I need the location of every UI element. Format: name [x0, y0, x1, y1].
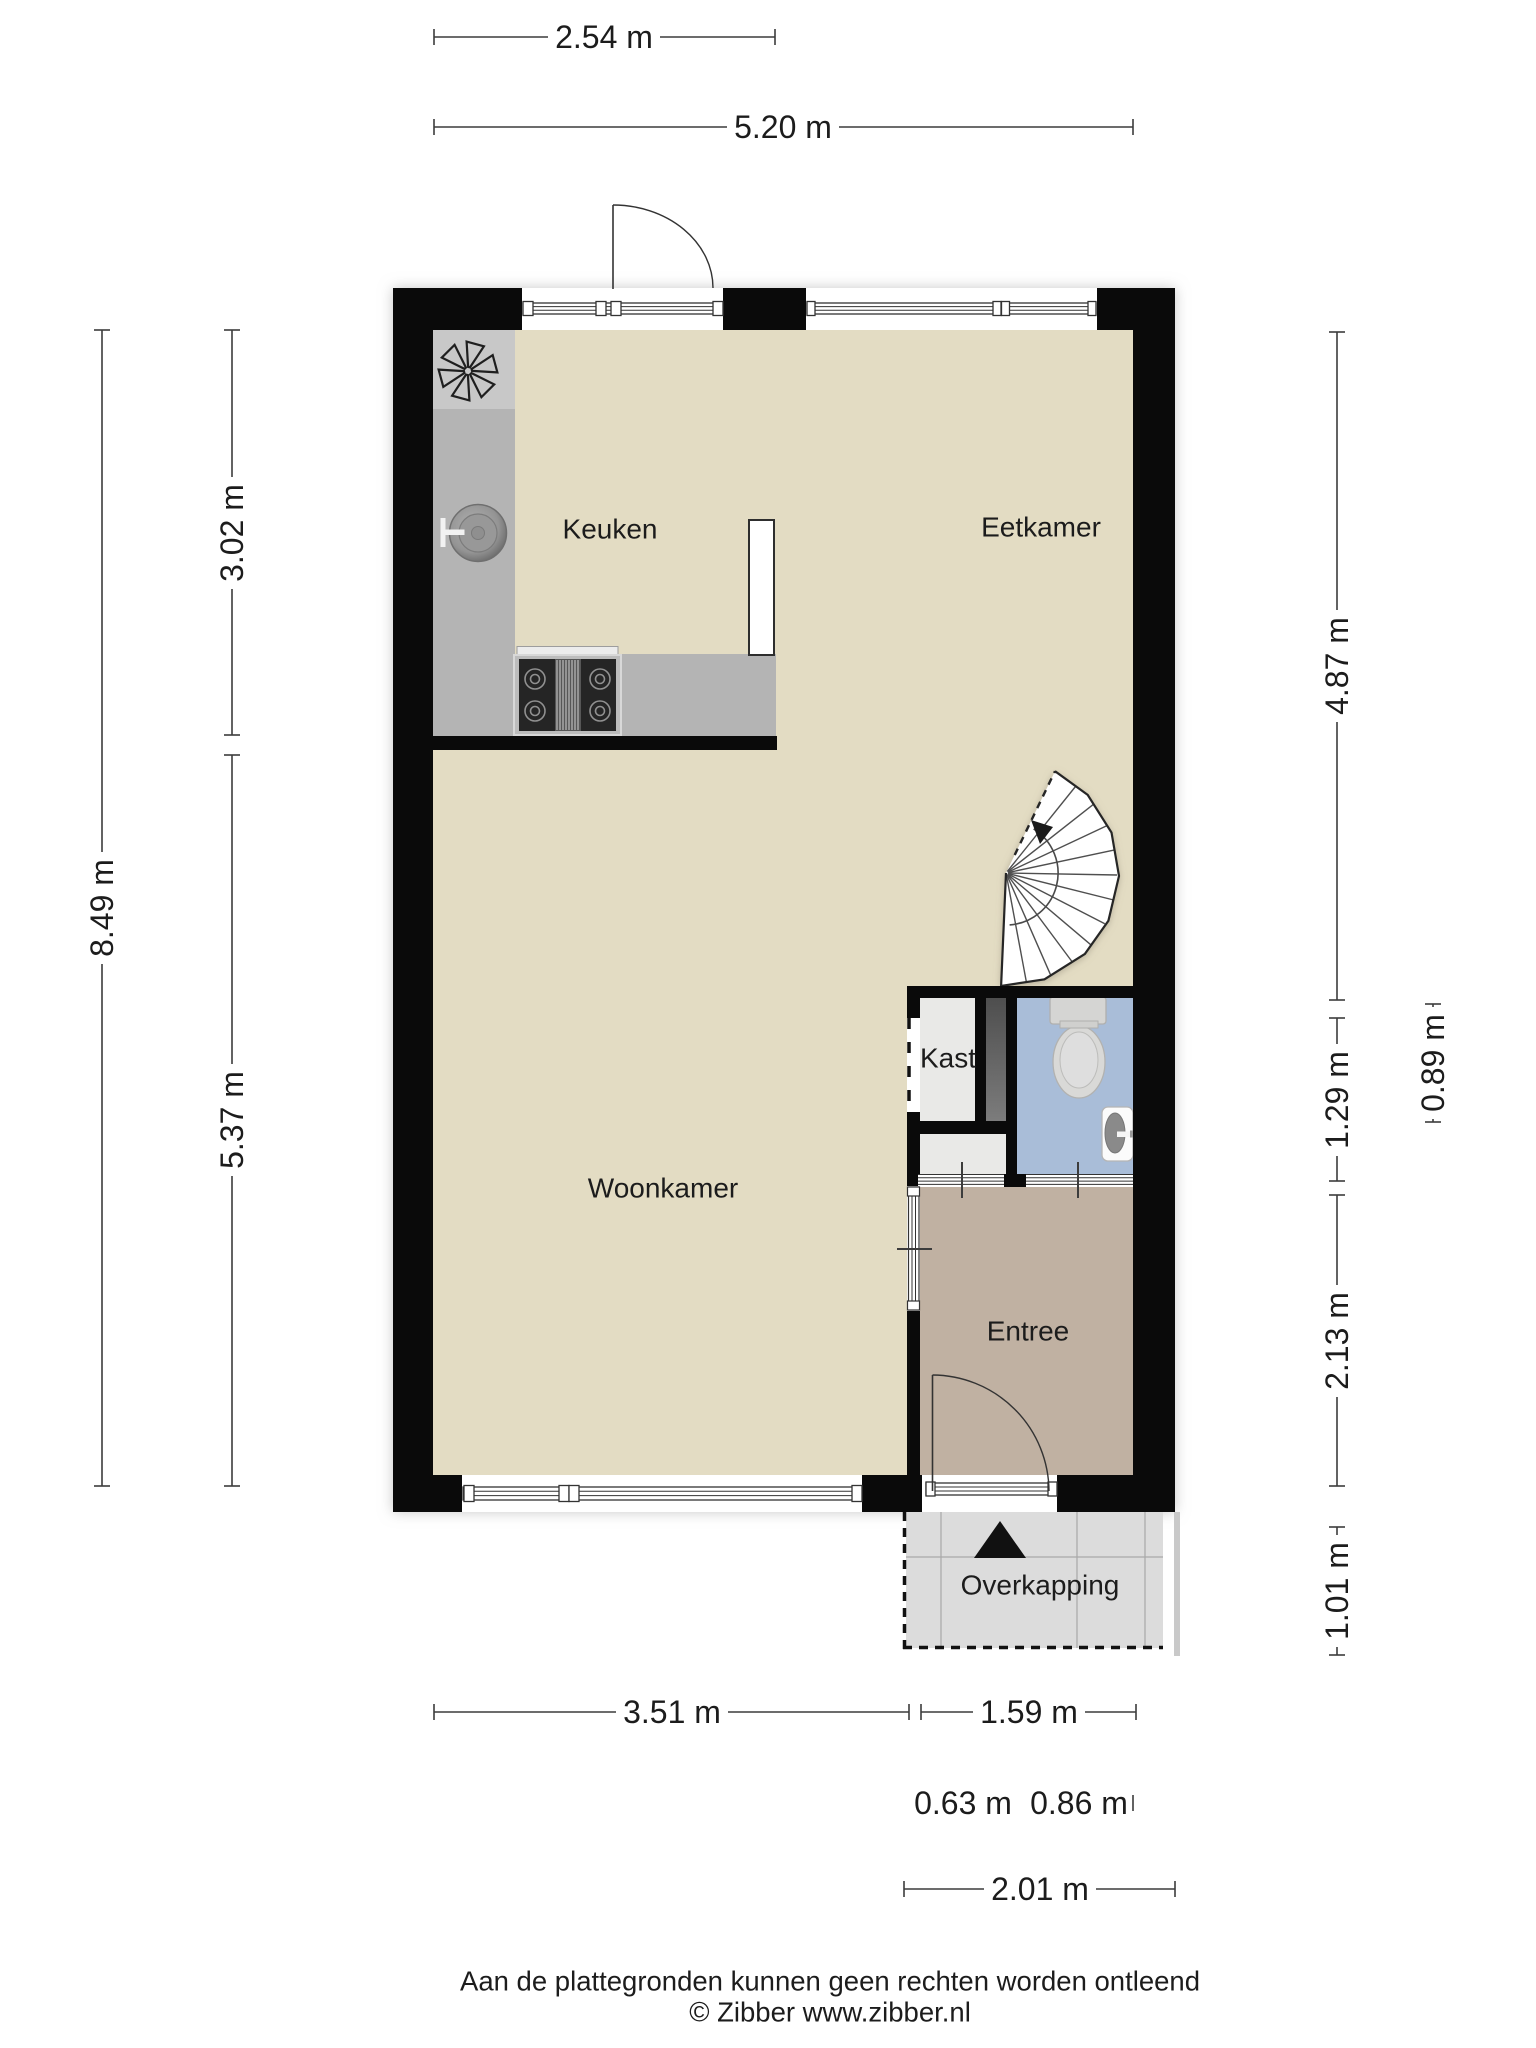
svg-text:Aan de plattegronden kunnen ge: Aan de plattegronden kunnen geen rechten… — [460, 1966, 1200, 1997]
svg-text:1.01 m: 1.01 m — [1319, 1542, 1355, 1640]
svg-text:Kast: Kast — [920, 1043, 976, 1074]
svg-text:Overkapping: Overkapping — [961, 1570, 1120, 1601]
svg-text:Keuken: Keuken — [563, 514, 658, 545]
svg-text:© Zibber www.zibber.nl: © Zibber www.zibber.nl — [689, 1997, 971, 2028]
svg-text:5.20 m: 5.20 m — [734, 109, 832, 145]
svg-text:2.01 m: 2.01 m — [991, 1871, 1089, 1907]
svg-text:3.02 m: 3.02 m — [214, 484, 250, 582]
svg-text:2.54 m: 2.54 m — [555, 19, 653, 55]
svg-text:2.13 m: 2.13 m — [1319, 1292, 1355, 1390]
svg-text:5.37 m: 5.37 m — [214, 1071, 250, 1169]
svg-text:1.59 m: 1.59 m — [980, 1694, 1078, 1730]
svg-text:Entree: Entree — [987, 1316, 1070, 1347]
svg-text:0.86 m: 0.86 m — [1030, 1785, 1128, 1821]
svg-text:0.89 m: 0.89 m — [1415, 1014, 1451, 1112]
svg-text:1.29 m: 1.29 m — [1319, 1051, 1355, 1149]
svg-text:0.63 m: 0.63 m — [914, 1785, 1012, 1821]
svg-text:4.87 m: 4.87 m — [1319, 617, 1355, 715]
svg-text:Woonkamer: Woonkamer — [588, 1173, 738, 1204]
svg-text:8.49 m: 8.49 m — [84, 859, 120, 957]
svg-text:Eetkamer: Eetkamer — [981, 512, 1101, 543]
svg-text:3.51 m: 3.51 m — [623, 1694, 721, 1730]
